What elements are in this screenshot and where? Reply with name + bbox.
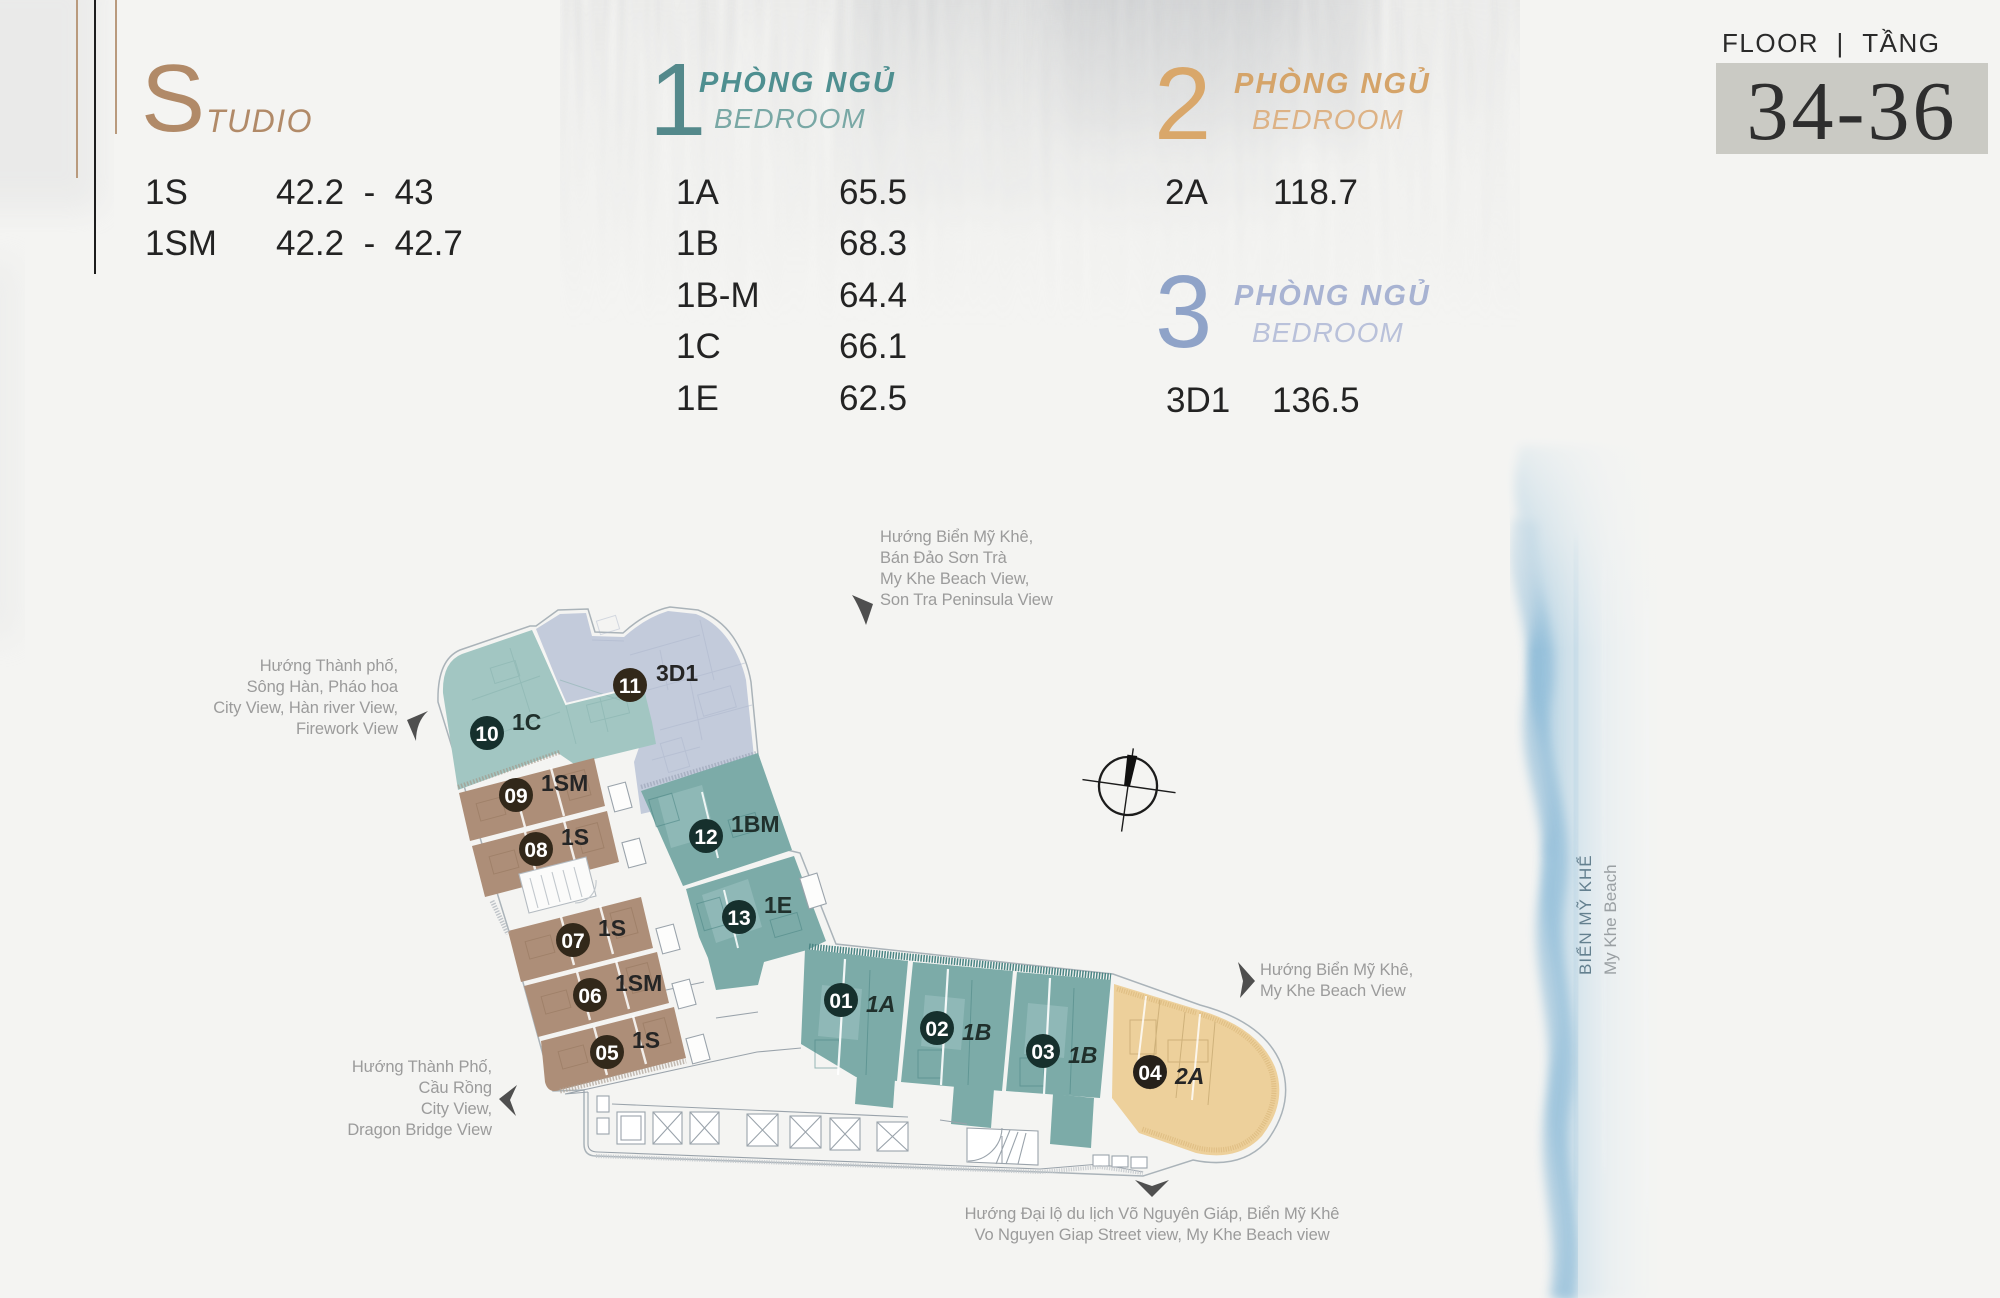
svg-text:11: 11: [619, 675, 642, 698]
svg-text:02: 02: [925, 1018, 948, 1041]
svg-text:1B: 1B: [962, 1019, 991, 1045]
svg-text:09: 09: [504, 785, 527, 808]
svg-text:01: 01: [829, 990, 853, 1013]
svg-text:1S: 1S: [598, 915, 626, 941]
svg-text:04: 04: [1138, 1062, 1162, 1085]
svg-text:1C: 1C: [512, 709, 541, 735]
svg-text:10: 10: [475, 723, 498, 746]
svg-text:06: 06: [578, 985, 601, 1008]
svg-text:12: 12: [694, 826, 717, 849]
svg-text:07: 07: [561, 930, 584, 953]
svg-text:08: 08: [524, 839, 548, 862]
svg-text:1S: 1S: [561, 824, 589, 850]
svg-text:1B: 1B: [1068, 1042, 1097, 1068]
svg-text:13: 13: [727, 907, 750, 930]
svg-text:1E: 1E: [764, 892, 792, 918]
svg-text:03: 03: [1031, 1041, 1054, 1064]
svg-text:1S: 1S: [632, 1027, 660, 1053]
svg-text:1SM: 1SM: [615, 970, 662, 996]
svg-text:2A: 2A: [1174, 1063, 1204, 1089]
svg-text:1SM: 1SM: [541, 770, 588, 796]
svg-text:05: 05: [595, 1042, 619, 1065]
svg-text:3D1: 3D1: [656, 660, 698, 686]
svg-text:1A: 1A: [866, 991, 895, 1017]
svg-text:1BM: 1BM: [731, 811, 780, 837]
